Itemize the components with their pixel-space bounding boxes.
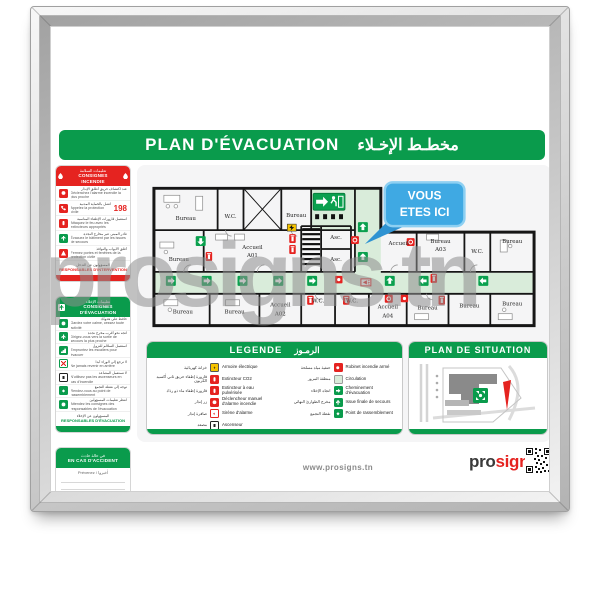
item-french: Dirigez-vous vers la sortie de secours l… — [71, 335, 128, 343]
evacuation-item: حافظ على هدوئك Gardez votre calme, cesse… — [56, 317, 130, 331]
accident-header: في حالة حادث EN CAS D'ACCIDENT — [56, 448, 130, 468]
emergency-number: 198 — [114, 204, 127, 213]
en-cas-accident-card: في حالة حادث EN CAS D'ACCIDENT Prévenez … — [55, 447, 131, 492]
room-label: Bureau — [169, 257, 190, 263]
final-exit-icon — [334, 398, 343, 407]
legend-left-column: خزانة كهربائيةArmoire électrique قارورة … — [151, 362, 275, 431]
evacuation-item: استعمل السلالم للنزول Empruntez les esca… — [56, 344, 130, 358]
room-label: Bureau — [502, 239, 523, 245]
fire-hose-icon — [334, 363, 343, 372]
legend-item: مخرج الطوارئ النهائيIssue finale de seco… — [275, 397, 399, 409]
legend-item: حنفية مياه مسلحةRobinet incendie armé — [275, 362, 399, 374]
legend-french: Sirène d'alarme — [222, 411, 253, 416]
evacuation-footer: المسؤولون عن الإخلاء RESPONSABLES D'ÉVAC… — [56, 412, 130, 426]
title-french: PLAN D'ÉVACUATION — [145, 135, 339, 155]
alarm-siren-icon — [210, 409, 219, 418]
room-label: Bureau — [286, 213, 307, 219]
logo-pro: pro — [469, 452, 495, 471]
room-label: Bureau — [173, 310, 194, 316]
room-label: W.C. — [312, 299, 324, 305]
situation-title: PLAN DE SITUATION — [425, 345, 532, 355]
consignes-incendie-header: تعليمات السلامة CONSIGNES INCENDIE — [56, 166, 130, 186]
legend-body: خزانة كهربائيةArmoire électrique قارورة … — [147, 358, 402, 431]
circulation-swatch — [334, 375, 343, 384]
alarm-button-icon — [59, 189, 68, 198]
item-french: Appelez la protection civile — [71, 206, 112, 214]
room-label: W.C. — [224, 214, 236, 220]
assembly-point-icon — [473, 388, 488, 403]
legend-arabic: قارورة إطفاء حريق ثاني أكسيد الكربون — [151, 375, 207, 384]
card-bottom-bar — [56, 275, 130, 281]
room-label: Bureau — [430, 239, 451, 245]
no-elevator-icon — [59, 373, 68, 382]
room-label: W.C. — [346, 299, 358, 305]
room-label: Bureau — [459, 304, 480, 310]
room-label: A01 — [246, 253, 258, 259]
legend-item: منطقة المرورCirculation — [275, 374, 399, 386]
legend-right-column: حنفية مياه مسلحةRobinet incendie armé من… — [275, 362, 399, 431]
warning-icon — [59, 249, 68, 258]
legend-arabic: منطقة المرور — [275, 377, 331, 382]
assembly-point-icon — [59, 386, 68, 395]
legend-french: Armoire électrique — [222, 365, 258, 370]
situation-card: PLAN DE SITUATION — [408, 341, 548, 435]
item-french: Empruntez les escaliers pour évacuer — [71, 348, 128, 356]
legend-arabic: قارورة إطفاء ماء ذو رذاذ — [151, 389, 207, 394]
evacuation-poster: PLAN D'ÉVACUATION مخطـط الإخـلاء تعليمات… — [50, 26, 550, 492]
footer-french: RESPONSABLES D'ÉVACUATION — [59, 418, 127, 423]
footer-french: RESPONSABLES D'INTERVENTION — [59, 267, 127, 272]
title-arabic: مخطـط الإخـلاء — [357, 135, 459, 155]
incendie-footer: المسؤولون عن التدخل RESPONSABLES D'INTER… — [56, 261, 130, 275]
incendie-header-french: CONSIGNES INCENDIE — [66, 173, 120, 184]
legend-arabic: زر إنذار — [151, 400, 207, 405]
phone-icon — [59, 204, 68, 213]
legend-french: Extincteur CO2 — [222, 377, 252, 382]
room-label: Bureau — [176, 216, 197, 222]
card-bottom-bar — [56, 426, 130, 432]
incendie-item: أغلق الأبواب والنوافذ Fermez portes et f… — [56, 246, 130, 261]
legend-arabic: مخرج الطوارئ النهائي — [275, 400, 331, 405]
situation-header: PLAN DE SITUATION — [409, 342, 547, 358]
room-label: A04 — [381, 314, 393, 320]
exit-man-icon — [59, 234, 68, 243]
floor-plan: Bureau W.C. Bureau Bureau Accueil A01 As… — [140, 168, 548, 338]
item-french: Fermez portes et fenêtres de la protecti… — [71, 251, 128, 259]
evacuation-item: لا تستعمل المصاعد N'utilisez pas les asc… — [56, 371, 130, 385]
item-french: Déclenchez l'alarme incendie la plus pro… — [71, 191, 128, 199]
electrical-cabinet-icon — [210, 363, 219, 372]
legend-item: قارورة إطفاء ماء ذو رذاذExtincteur à eau… — [151, 385, 275, 397]
room-label: Accueil — [377, 305, 399, 311]
legend-french: Issue finale de secours — [346, 400, 391, 405]
item-french: Évacuez le bâtiment par les issues de se… — [71, 236, 128, 244]
assembly-point-icon — [334, 409, 343, 418]
manual-alarm-icon — [210, 398, 219, 407]
evacuation-header-french: CONSIGNES D'ÉVACUATION — [68, 304, 128, 315]
consignes-evacuation-header: تعليمات الإخلاء CONSIGNES D'ÉVACUATION — [56, 297, 130, 317]
legend-card: LEGENDE الرمـوز خزانة كهربائيةArmoire él… — [146, 341, 403, 435]
legend-french: Point de rassemblement — [346, 411, 393, 416]
room-label: A03 — [434, 247, 446, 253]
room-label: A02 — [274, 312, 286, 318]
website-url: www.prosigns.tn — [258, 463, 418, 472]
legend-french: Robinet incendie armé — [346, 365, 390, 370]
poster-frame: PLAN D'ÉVACUATION مخطـط الإخـلاء تعليمات… — [30, 6, 570, 512]
item-french: Attendez les consignes des responsables … — [71, 402, 128, 410]
walking-person-icon — [59, 332, 68, 341]
incendie-item: غادر المبنى عبر مخارج النجدة Évacuez le … — [56, 231, 130, 246]
card-bottom-bar — [409, 429, 547, 434]
situation-map — [409, 358, 547, 433]
evacuation-item: توجه إلى نقطة التجمع Rendez-vous au poin… — [56, 385, 130, 399]
instructions-sidebar: تعليمات السلامة CONSIGNES INCENDIE عند ا… — [55, 165, 131, 492]
legend-item: صافرة إنذارSirène d'alarme — [151, 408, 275, 420]
callout-line2: ETES ICI — [400, 205, 450, 219]
item-french: N'utilisez pas les ascenseurs en cas d'i… — [71, 375, 128, 383]
legend-title-french: LEGENDE — [229, 345, 282, 356]
room-label: Bureau — [417, 306, 438, 312]
flame-icon — [58, 173, 63, 179]
legend-item: اتجاه الإخلاءCheminement d'évacuation — [275, 385, 399, 397]
legend-arabic: نقطة التجمع — [275, 412, 331, 417]
item-french: Gardez votre calme, cessez toute activit… — [71, 321, 128, 329]
room-label: Asc. — [329, 235, 342, 241]
room-label: Asc. — [329, 257, 342, 263]
legend-item: خزانة كهربائيةArmoire électrique — [151, 362, 275, 374]
evacuation-item: لا ترجع إلى الوراء أبدا Ne jamais reveni… — [56, 358, 130, 372]
legend-french: Circulation — [346, 377, 367, 382]
legend-french: Ascenseur — [222, 423, 243, 428]
poster-title-bar: PLAN D'ÉVACUATION مخطـط الإخـلاء — [59, 130, 545, 160]
legend-title-arabic: الرمـوز — [294, 345, 319, 356]
card-bottom-bar — [147, 429, 402, 434]
room-label: Accueil — [241, 245, 263, 251]
legend-french: Cheminement d'évacuation — [346, 386, 399, 396]
legend-header: LEGENDE الرمـوز — [147, 342, 402, 358]
write-in-line — [61, 483, 125, 490]
legend-item: نقطة التجمعPoint de rassemblement — [275, 408, 399, 420]
legend-french: Déclencheur manuel d'alarme incendie — [222, 397, 275, 407]
frame-bevel: PLAN D'ÉVACUATION مخطـط الإخـلاء تعليمات… — [39, 15, 561, 503]
write-in-line — [61, 476, 125, 483]
room-label: Bureau — [502, 302, 523, 308]
crowd-icon — [59, 400, 68, 409]
calm-icon — [59, 319, 68, 328]
legend-arabic: صافرة إنذار — [151, 412, 207, 417]
stairs-icon — [59, 346, 68, 355]
item-french: Rendez-vous au point de rassemblement — [71, 389, 128, 397]
legend-french: Extincteur à eau pulvérisée — [222, 386, 275, 396]
room-label: Accueil — [269, 303, 291, 309]
legend-item: قارورة إطفاء حريق ثاني أكسيد الكربونExti… — [151, 374, 275, 386]
item-french: Ne jamais revenir en arrière — [71, 364, 128, 368]
incendie-item: عند اكتشاف حريق أطلق الإنذار Déclenchez … — [56, 186, 130, 201]
consignes-evacuation-card: تعليمات الإخلاء CONSIGNES D'ÉVACUATION ح… — [55, 296, 131, 433]
room-label: Bureau — [224, 310, 245, 316]
room-label: Accueil — [388, 241, 410, 247]
legend-arabic: خزانة كهربائية — [151, 366, 207, 371]
callout-line1: VOUS — [408, 188, 442, 202]
no-return-icon — [59, 359, 68, 368]
flame-icon — [123, 173, 128, 179]
incendie-item: استعمل قارورات الإطفاء المناسبة Attaquez… — [56, 216, 130, 231]
page: PLAN D'ÉVACUATION مخطـط الإخـلاء تعليمات… — [0, 0, 600, 600]
co2-extinguisher-icon — [210, 375, 219, 384]
evacuation-item: اتجه نحو أقرب مخرج نجدة Dirigez-vous ver… — [56, 331, 130, 345]
water-extinguisher-icon — [210, 386, 219, 395]
accident-header-french: EN CAS D'ACCIDENT — [68, 458, 118, 464]
extinguisher-icon — [59, 219, 68, 228]
room-label: W.C. — [471, 249, 483, 255]
legend-arabic: حنفية مياه مسلحة — [275, 366, 331, 371]
evacuation-item: انتظر تعليمات المسؤولين Attendez les con… — [56, 398, 130, 412]
accident-note: Prévenez / أخبروا — [59, 470, 127, 475]
qr-code — [525, 447, 550, 474]
legend-item: زر إنذارDéclencheur manuel d'alarme ince… — [151, 397, 275, 409]
legend-arabic: مصعد — [151, 423, 207, 428]
item-french: Attaquez le feu avec les extincteurs app… — [71, 221, 128, 229]
incendie-item: اتصل بالحماية المدنية Appelez la protect… — [56, 201, 130, 216]
consignes-incendie-card: تعليمات السلامة CONSIGNES INCENDIE عند ا… — [55, 165, 131, 282]
legend-arabic: اتجاه الإخلاء — [275, 389, 331, 394]
exit-sign-icon — [58, 304, 65, 311]
evacuation-path-icon — [334, 386, 343, 395]
site-map — [413, 360, 543, 426]
